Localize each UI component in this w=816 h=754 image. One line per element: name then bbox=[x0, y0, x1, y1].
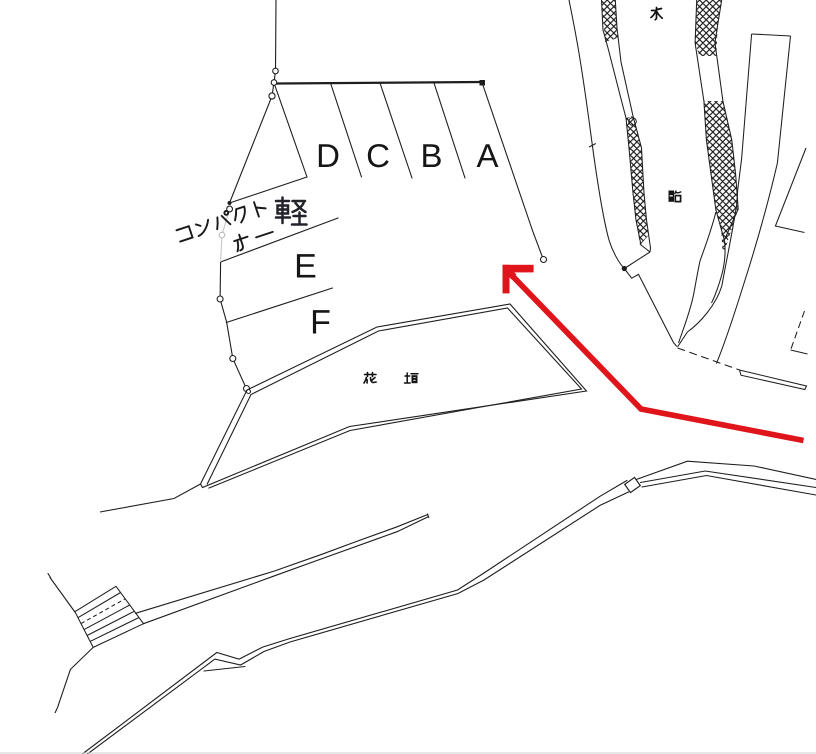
svg-text:C: C bbox=[366, 137, 390, 174]
svg-text:D: D bbox=[316, 137, 340, 174]
svg-text:E: E bbox=[294, 248, 317, 286]
svg-text:F: F bbox=[310, 304, 331, 342]
svg-text:A: A bbox=[476, 137, 498, 174]
svg-text:B: B bbox=[420, 137, 442, 174]
